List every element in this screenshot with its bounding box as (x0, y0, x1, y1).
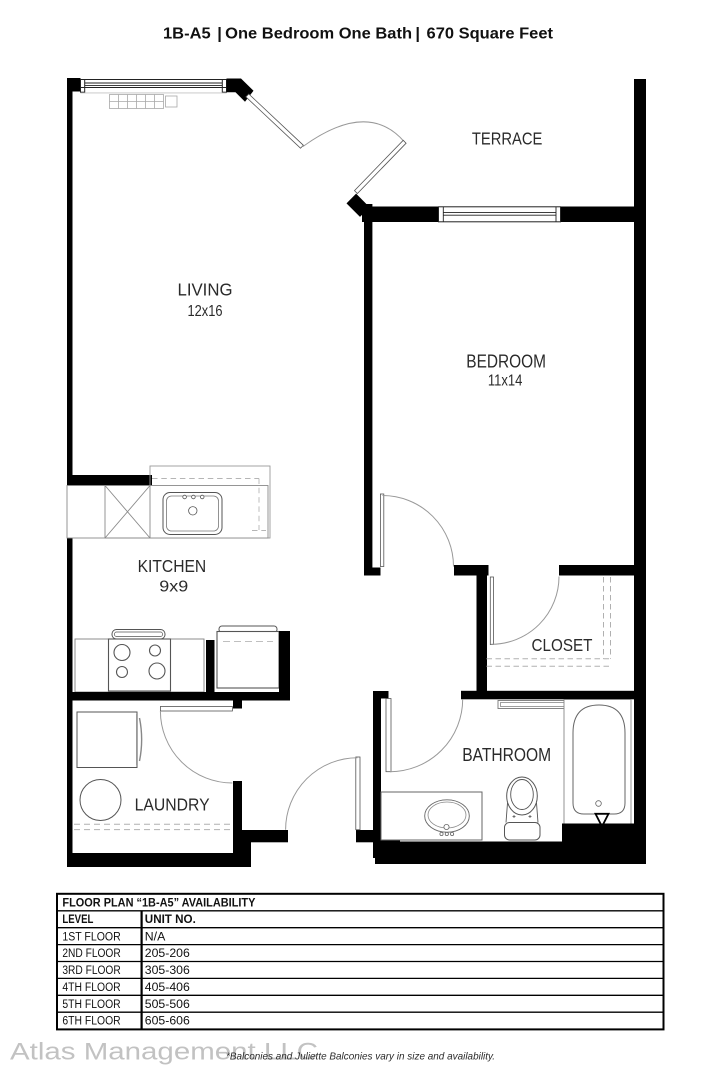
svg-text:FLOOR PLAN “1B-A5” AVAILABILIT: FLOOR PLAN “1B-A5” AVAILABILITY (62, 895, 255, 909)
svg-text:6TH FLOOR: 6TH FLOOR (62, 1014, 120, 1028)
svg-text:5TH FLOOR: 5TH FLOOR (62, 997, 120, 1011)
svg-text:305-306: 305-306 (145, 963, 190, 977)
svg-text:3RD FLOOR: 3RD FLOOR (62, 963, 120, 977)
svg-text:9x9: 9x9 (159, 579, 188, 596)
svg-text:LIVING: LIVING (178, 279, 233, 299)
svg-text:KITCHEN: KITCHEN (138, 556, 207, 576)
svg-text:1ST FLOOR: 1ST FLOOR (62, 929, 120, 943)
svg-text:TERRACE: TERRACE (472, 128, 543, 148)
svg-text:11x14: 11x14 (488, 372, 523, 389)
svg-text:*Balconies and Juliette Balcon: *Balconies and Juliette Balconies vary i… (226, 1051, 495, 1063)
svg-text:405-406: 405-406 (145, 980, 190, 994)
svg-text:BEDROOM: BEDROOM (466, 351, 546, 371)
svg-text:CLOSET: CLOSET (532, 635, 593, 655)
svg-text:N/A: N/A (145, 929, 166, 943)
svg-text:LAUNDRY: LAUNDRY (135, 794, 210, 814)
svg-text:LEVEL: LEVEL (62, 912, 93, 926)
svg-text:BATHROOM: BATHROOM (462, 745, 551, 765)
svg-text:605-606: 605-606 (145, 1014, 190, 1028)
svg-text:1B-A5 | One Bedroom One Bath: 1B-A5 | One Bedroom One Bath | 670 Squar… (163, 25, 553, 42)
svg-text:4TH FLOOR: 4TH FLOOR (62, 980, 120, 994)
svg-text:205-206: 205-206 (145, 946, 190, 960)
svg-text:2ND FLOOR: 2ND FLOOR (62, 946, 120, 960)
svg-text:12x16: 12x16 (188, 303, 223, 320)
svg-text:UNIT NO.: UNIT NO. (145, 912, 196, 926)
svg-text:505-506: 505-506 (145, 997, 190, 1011)
